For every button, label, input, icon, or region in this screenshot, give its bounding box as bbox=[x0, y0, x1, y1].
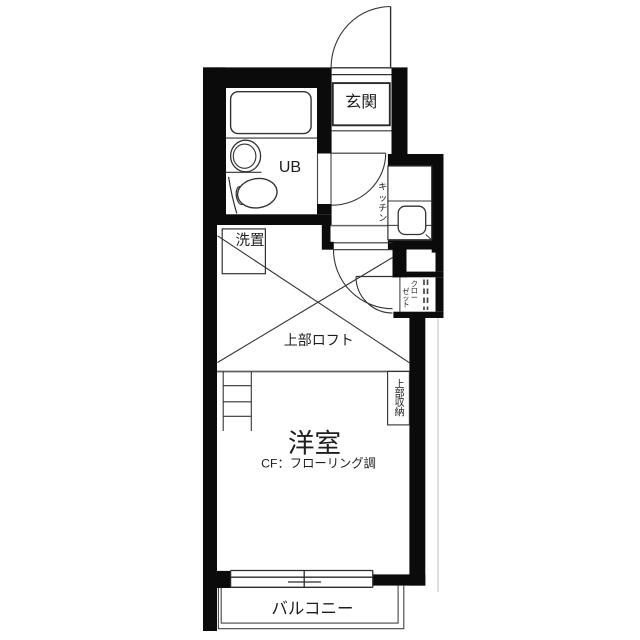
svg-text:キ: キ bbox=[378, 182, 387, 192]
svg-text:洗置: 洗置 bbox=[236, 232, 265, 249]
svg-text:ン: ン bbox=[378, 213, 387, 223]
svg-text:ト: ト bbox=[402, 300, 409, 309]
svg-text:ー: ー bbox=[411, 293, 418, 302]
svg-text:納: 納 bbox=[395, 405, 405, 418]
svg-text:玄関: 玄関 bbox=[345, 93, 377, 111]
svg-text:チ: チ bbox=[378, 203, 387, 213]
svg-text:上部ロフト: 上部ロフト bbox=[284, 332, 354, 348]
svg-text:バルコニー: バルコニー bbox=[271, 600, 353, 618]
svg-text:UB: UB bbox=[279, 159, 301, 176]
svg-text:洋室: 洋室 bbox=[288, 428, 341, 458]
svg-text:ッ: ッ bbox=[378, 193, 387, 203]
svg-text:CF：フローリング調: CF：フローリング調 bbox=[261, 456, 376, 470]
